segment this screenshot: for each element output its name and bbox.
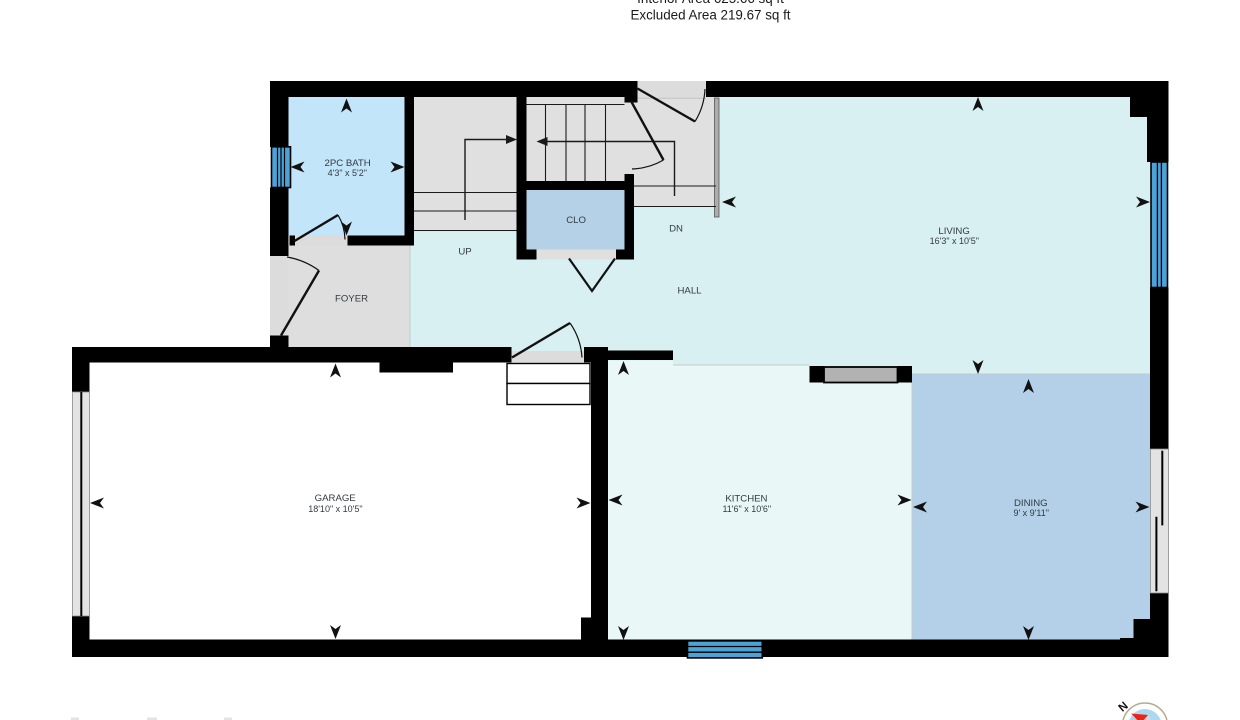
svg-text:Excluded Area 219.67 sq ft: Excluded Area 219.67 sq ft <box>630 8 790 23</box>
svg-text:HALL: HALL <box>678 286 703 297</box>
svg-text:CLO: CLO <box>566 215 586 226</box>
svg-text:16'3" x 10'5": 16'3" x 10'5" <box>930 236 979 246</box>
svg-text:4'3" x 5'2": 4'3" x 5'2" <box>328 168 367 178</box>
svg-text:9' x 9'11": 9' x 9'11" <box>1013 508 1049 518</box>
svg-text:UP: UP <box>458 247 471 258</box>
svg-text:KITCHEN: KITCHEN <box>725 493 767 504</box>
svg-text:18'10" x 10'5": 18'10" x 10'5" <box>308 504 362 514</box>
svg-text:11'6" x 10'6": 11'6" x 10'6" <box>722 504 771 514</box>
svg-text:Interior Area 625.66 sq ft: Interior Area 625.66 sq ft <box>637 0 784 6</box>
svg-text:DN: DN <box>669 224 683 235</box>
svg-text:GARAGE: GARAGE <box>315 493 356 504</box>
svg-text:FOYER: FOYER <box>335 294 368 305</box>
